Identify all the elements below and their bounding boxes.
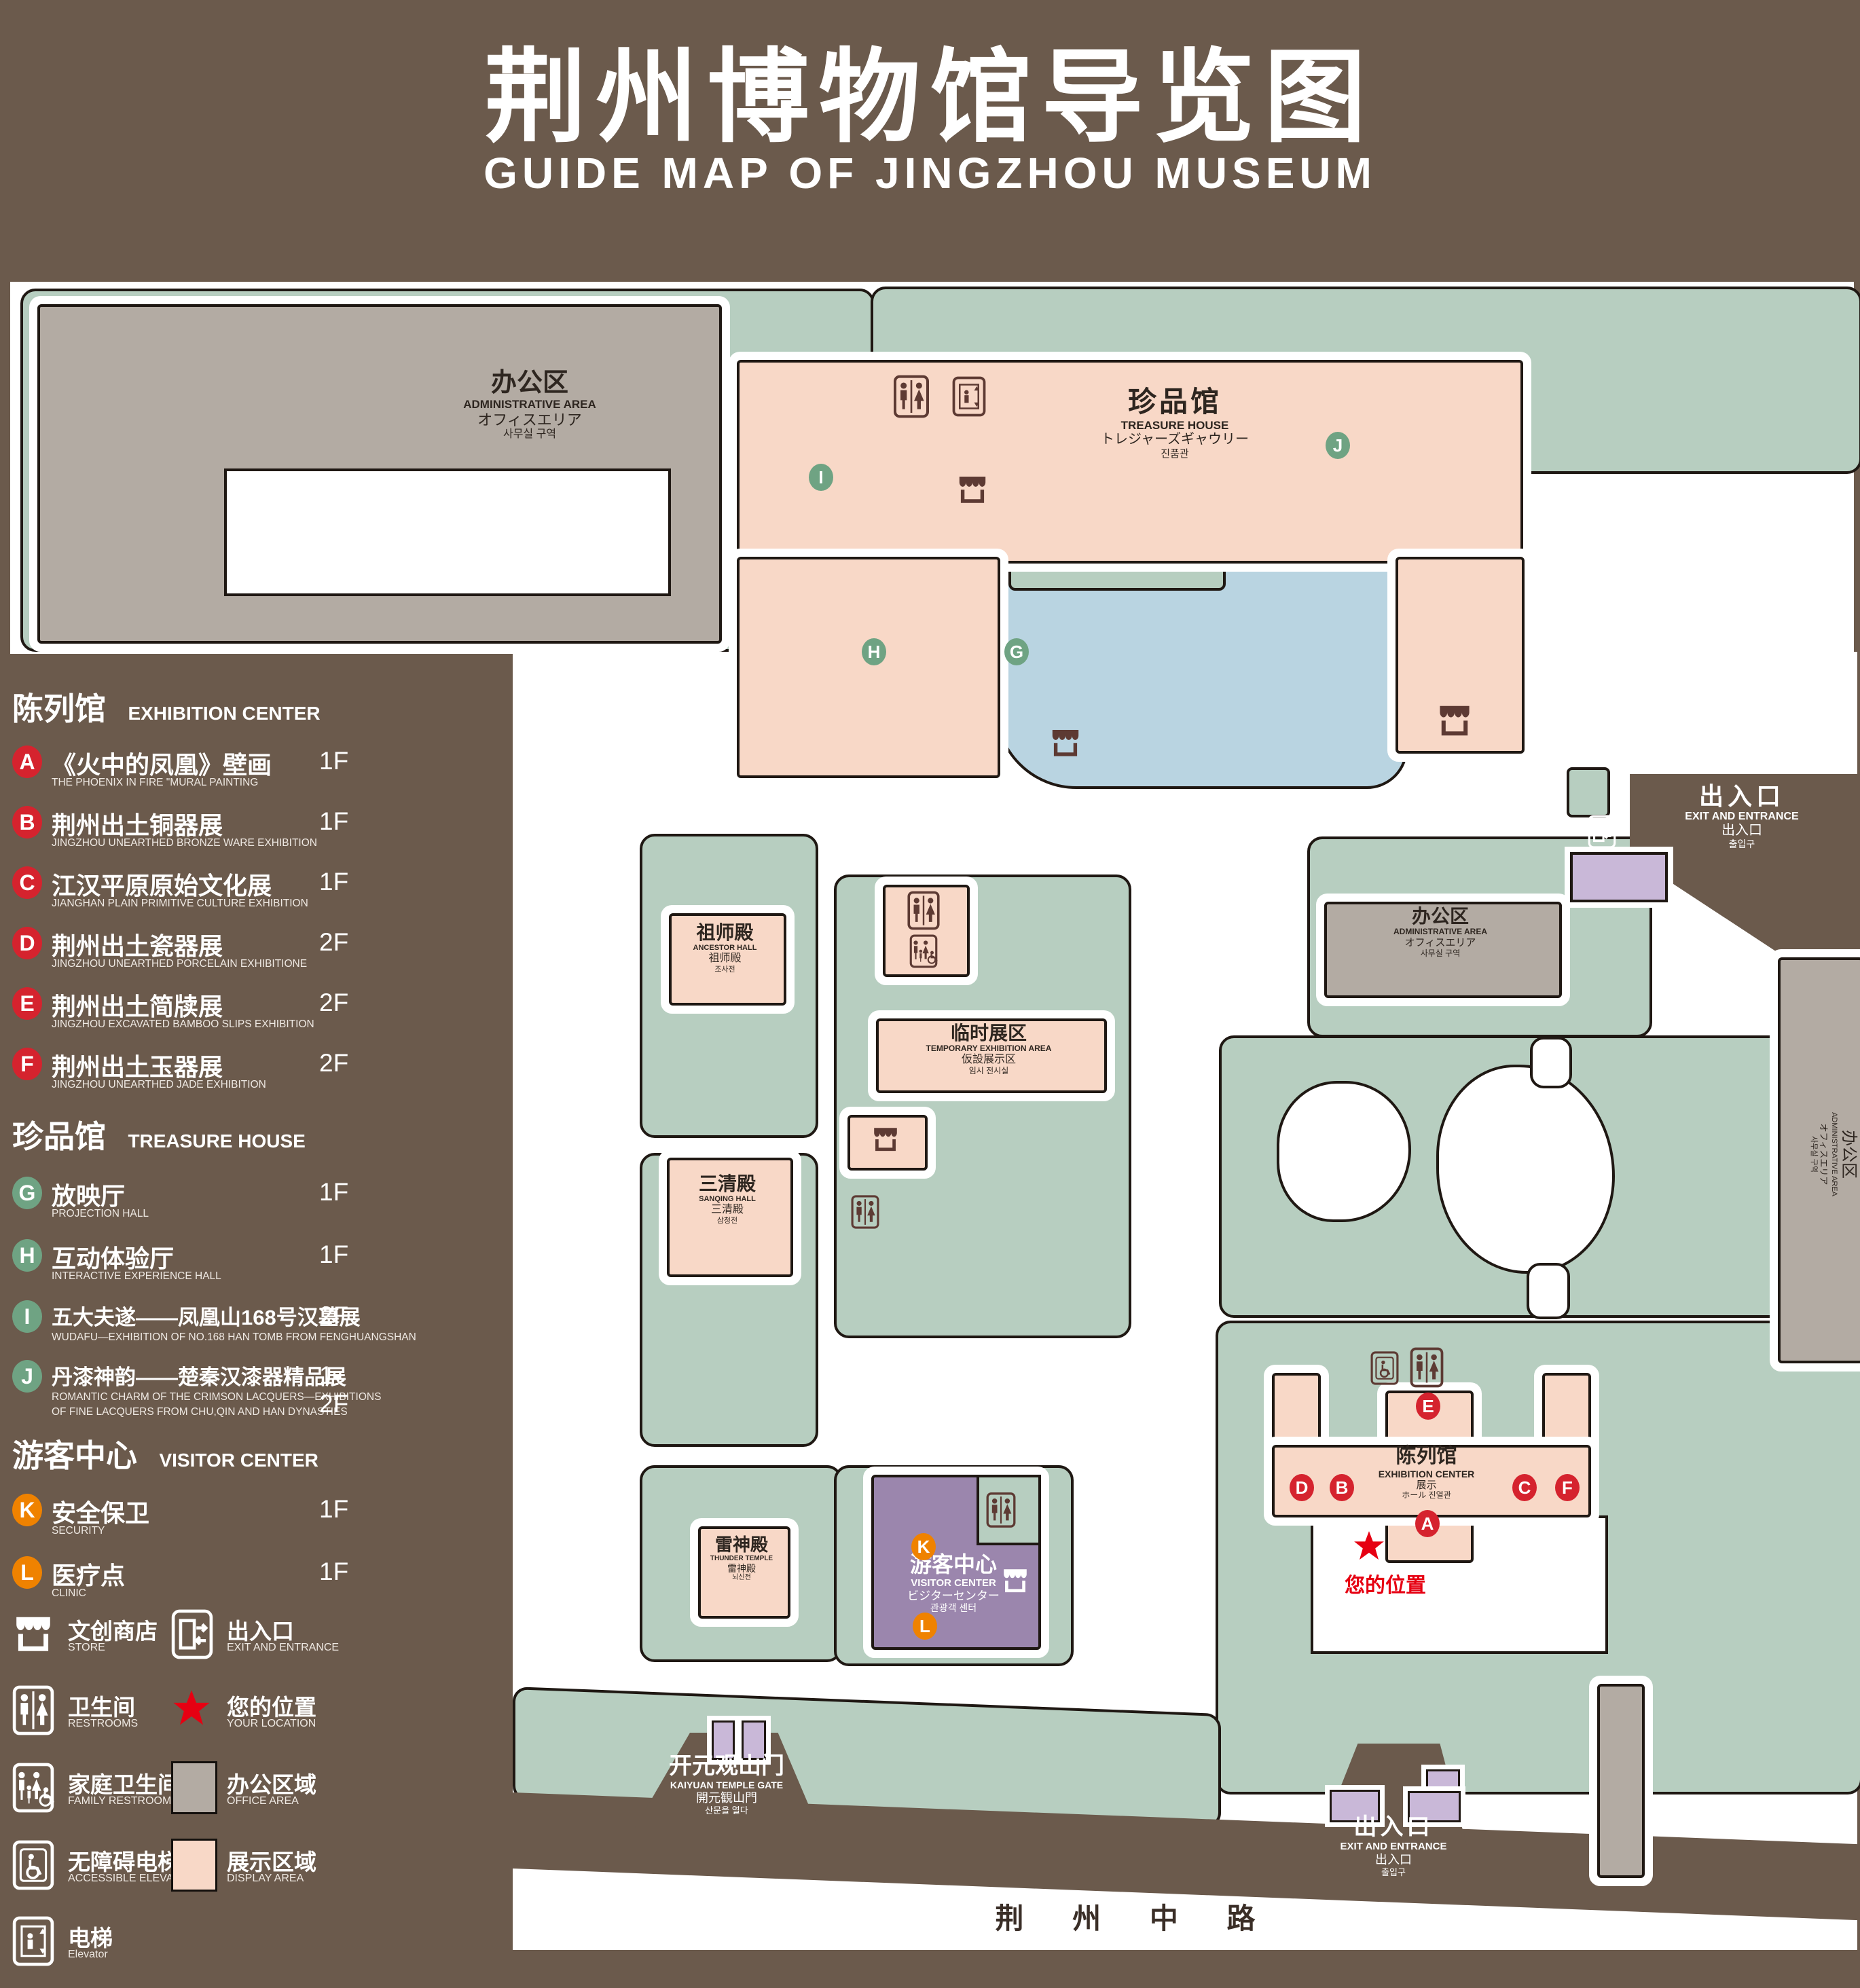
page-title: 荆州博物馆导览图 bbox=[0, 15, 1860, 162]
legend-item-title: 五大夫遂——凤凰山168号汉墓展 bbox=[52, 1300, 316, 1331]
legend-item-floor: 2F bbox=[319, 928, 348, 957]
accessible-elevator-icon bbox=[1370, 1348, 1399, 1388]
legend-item-floor: 2F bbox=[319, 1049, 348, 1078]
legend-item-floor: 1-2F bbox=[319, 1361, 362, 1418]
map-marker-J: J bbox=[1326, 432, 1350, 459]
admin-northwest-label: 办公区 ADMINISTRATIVE AREA オフィスエリア 사무실 구역 bbox=[421, 368, 638, 441]
legend-symbol-display-area: 展示区域 DISPLAY AREA bbox=[171, 1839, 348, 1907]
legend-letter-badge: D bbox=[12, 927, 42, 959]
elevator-icon bbox=[952, 375, 986, 418]
legend-item-floor: 2F bbox=[319, 1302, 348, 1330]
restrooms-icon bbox=[893, 375, 930, 418]
map-marker-G: G bbox=[1004, 638, 1029, 665]
legend-letter-badge: C bbox=[12, 866, 42, 899]
legend-item-E: E 荆州出土简牍展 JINGZHOU EXCAVATED BAMBOO SLIP… bbox=[12, 987, 362, 1050]
office-area-swatch bbox=[171, 1761, 217, 1814]
legend-symbol-title: 电梯 bbox=[68, 1920, 113, 1953]
building-treasure-house-west bbox=[737, 557, 1000, 778]
exit-icon bbox=[1584, 815, 1620, 849]
legend-letter-badge: K bbox=[12, 1494, 42, 1526]
legend-item-title: 荆州出土瓷器展 bbox=[52, 927, 316, 962]
legend-section-title-zh: 游客中心 bbox=[12, 1438, 137, 1473]
store-icon bbox=[12, 1610, 54, 1655]
legend-item-A: A 《火中的凤凰》壁画 THE PHOENIX IN FIRE "MURAL P… bbox=[12, 745, 362, 808]
legend-item-I: I 五大夫遂——凤凰山168号汉墓展 WUDAFU—EXHIBITION OF … bbox=[12, 1300, 362, 1363]
store-icon bbox=[871, 1122, 900, 1156]
legend-item-title: 荆州出土玉器展 bbox=[52, 1048, 316, 1083]
legend-letter-badge: E bbox=[12, 987, 42, 1020]
kaiyuan-gate-label: 开元观山门 KAIYUAN TEMPLE GATE 開元観山門 산문을 열다 bbox=[638, 1753, 815, 1816]
legend-item-floor: 1F bbox=[319, 747, 348, 775]
legend-symbol-your-location: 您的位置 YOUR LOCATION bbox=[171, 1684, 348, 1752]
legend-item-subtitle: JINGZHOU EXCAVATED BAMBOO SLIPS EXHIBITI… bbox=[52, 1018, 371, 1031]
accessible-elevator-icon bbox=[12, 1839, 54, 1892]
legend-item-floor: 1F bbox=[319, 1178, 348, 1207]
legend-item-subtitle: WUDAFU—EXHIBITION OF NO.168 HAN TOMB FRO… bbox=[52, 1331, 371, 1344]
legend-item-title: 安全保卫 bbox=[52, 1494, 316, 1529]
map-marker-F: F bbox=[1555, 1474, 1580, 1501]
guide-map-poster: 荆州博物馆导览图 GUIDE MAP OF JINGZHOU MUSEUM 办公… bbox=[0, 0, 1860, 1988]
garden-path-south bbox=[1527, 1263, 1570, 1319]
legend-symbol-office-area: 办公区域 OFFICE AREA bbox=[171, 1761, 348, 1829]
legend-item-subtitle: SECURITY bbox=[52, 1525, 371, 1537]
legend-item-title: 江汉平原原始文化展 bbox=[52, 866, 316, 902]
map-marker-B: B bbox=[1330, 1474, 1354, 1501]
legend-section-title-en: TREASURE HOUSE bbox=[128, 1130, 305, 1152]
admin-east-label: 办公区 ADMINISTRATIVE AREA オフィスエリア 사무실 구역 bbox=[1324, 906, 1556, 959]
legend-item-floor: 1F bbox=[319, 1240, 348, 1269]
map-marker-A: A bbox=[1415, 1510, 1440, 1537]
legend-symbol-subtitle: OFFICE AREA bbox=[227, 1795, 299, 1807]
exit-icon bbox=[171, 1608, 213, 1661]
legend-item-C: C 江汉平原原始文化展 JIANGHAN PLAIN PRIMITIVE CUL… bbox=[12, 866, 362, 929]
legend-symbol-title: 无障碍电梯 bbox=[68, 1844, 180, 1877]
display-area-swatch bbox=[171, 1839, 217, 1892]
store-icon bbox=[1436, 701, 1473, 739]
legend-item-D: D 荆州出土瓷器展 JINGZHOU UNEARTHED PORCELAIN E… bbox=[12, 927, 362, 989]
legend-item-K: K 安全保卫 SECURITY 1F bbox=[12, 1494, 362, 1556]
building-east-gate-annex bbox=[1570, 852, 1668, 902]
legend-symbol-subtitle: Elevator bbox=[68, 1949, 108, 1961]
map-marker-H: H bbox=[862, 638, 886, 665]
legend-item-F: F 荆州出土玉器展 JINGZHOU UNEARTHED JADE EXHIBI… bbox=[12, 1048, 362, 1110]
legend-letter-badge: B bbox=[12, 806, 42, 839]
legend-item-B: B 荆州出土铜器展 JINGZHOU UNEARTHED BRONZE WARE… bbox=[12, 806, 362, 868]
lawn-center bbox=[834, 875, 1131, 1338]
legend-item-floor: 2F bbox=[319, 989, 348, 1017]
legend-item-title: 放映厅 bbox=[52, 1177, 316, 1212]
legend-section-title-en: EXHIBITION CENTER bbox=[128, 703, 320, 724]
legend-symbol-title: 展示区域 bbox=[227, 1844, 316, 1877]
map-marker-I: I bbox=[809, 464, 833, 491]
restrooms-icon bbox=[907, 891, 941, 930]
legend-item-G: G 放映厅 PROJECTION HALL 1F bbox=[12, 1177, 362, 1239]
legend-section-treasure-house: 珍品馆 TREASURE HOUSE bbox=[12, 1112, 306, 1157]
legend-item-J: J 丹漆神韵——楚秦汉漆器精品展 ROMANTIC CHARM OF THE C… bbox=[12, 1360, 362, 1422]
legend-item-subtitle: JINGZHOU UNEARTHED BRONZE WARE EXHIBITIO… bbox=[52, 837, 371, 849]
legend-letter-badge: H bbox=[12, 1239, 42, 1272]
elevator-icon bbox=[12, 1915, 54, 1968]
legend-symbol-subtitle: YOUR LOCATION bbox=[227, 1718, 316, 1730]
legend-letter-badge: F bbox=[12, 1048, 42, 1080]
legend-item-title: 互动体验厅 bbox=[52, 1239, 316, 1274]
legend-symbol-elevator: 电梯 Elevator bbox=[12, 1915, 168, 1983]
your-location-star bbox=[172, 1689, 211, 1727]
building-exhibition-west-wing bbox=[1272, 1373, 1321, 1452]
store-icon bbox=[1049, 725, 1082, 759]
map-marker-L: L bbox=[913, 1613, 937, 1640]
family-restrooms-icon bbox=[12, 1761, 54, 1814]
store-icon bbox=[1001, 1564, 1029, 1596]
family-restrooms-icon bbox=[909, 934, 938, 968]
legend-symbol-title: 出入口 bbox=[227, 1613, 294, 1646]
legend-symbol-restrooms: 卫生间 RESTROOMS bbox=[12, 1684, 168, 1752]
legend-symbol-subtitle: STORE bbox=[68, 1642, 105, 1654]
legend-item-title: 医疗点 bbox=[52, 1556, 316, 1591]
road-label: 荆 州 中 路 bbox=[932, 1896, 1339, 1937]
legend-symbol-title: 卫生间 bbox=[68, 1689, 135, 1722]
legend-symbol-title: 文创商店 bbox=[68, 1613, 158, 1646]
legend-symbol-subtitle: FAMILY RESTROOMS bbox=[68, 1795, 179, 1807]
legend-item-title: 荆州出土铜器展 bbox=[52, 806, 316, 841]
restrooms-icon bbox=[851, 1194, 879, 1230]
building-exhibition-east-wing bbox=[1542, 1373, 1591, 1452]
legend-item-floor: 1F bbox=[319, 1495, 348, 1524]
map-marker-D: D bbox=[1290, 1474, 1314, 1501]
building-south-gray-block bbox=[1597, 1684, 1645, 1878]
sanqing-hall-label: 三清殿 SANQING HALL 三清殿 삼청전 bbox=[667, 1173, 788, 1226]
legend-item-subtitle: JINGZHOU UNEARTHED PORCELAIN EXHIBITIONE bbox=[52, 958, 371, 970]
legend-section-title-en: VISITOR CENTER bbox=[159, 1450, 318, 1471]
map-marker-K: K bbox=[911, 1533, 936, 1560]
your-location-star bbox=[1353, 1530, 1385, 1562]
legend-symbol-store: 文创商店 STORE bbox=[12, 1608, 168, 1676]
map-marker-E: E bbox=[1416, 1393, 1440, 1420]
legend-item-subtitle: CLINIC bbox=[52, 1587, 371, 1600]
legend-letter-badge: L bbox=[12, 1556, 42, 1589]
temporary-exhibition-label: 临时展区 TEMPORARY EXHIBITION AREA 仮設展示区 임시 … bbox=[876, 1023, 1101, 1076]
legend-section-visitor-center: 游客中心 VISITOR CENTER bbox=[12, 1431, 318, 1476]
legend-item-subtitle: JINGZHOU UNEARTHED JADE EXHIBITION bbox=[52, 1079, 371, 1091]
page-subtitle: GUIDE MAP OF JINGZHOU MUSEUM bbox=[0, 148, 1860, 198]
legend-letter-badge: G bbox=[12, 1177, 42, 1209]
legend-symbol-subtitle: RESTROOMS bbox=[68, 1718, 138, 1730]
legend-symbol-title: 您的位置 bbox=[227, 1689, 316, 1722]
legend-item-subtitle: PROJECTION HALL bbox=[52, 1208, 371, 1220]
legend-letter-badge: A bbox=[12, 745, 42, 778]
legend-letter-badge: I bbox=[12, 1300, 42, 1333]
road-south-curb bbox=[513, 1950, 1860, 1988]
legend-item-H: H 互动体验厅 INTERACTIVE EXPERIENCE HALL 1F bbox=[12, 1239, 362, 1302]
legend-section-exhibition-center: 陈列馆 EXHIBITION CENTER bbox=[12, 684, 321, 729]
map-marker-C: C bbox=[1512, 1474, 1537, 1501]
legend-section-title-zh: 陈列馆 bbox=[12, 691, 106, 726]
legend-item-floor: 1F bbox=[319, 868, 348, 896]
legend-item-title: 《火中的凤凰》壁画 bbox=[52, 745, 316, 781]
legend-symbol-title: 家庭卫生间 bbox=[68, 1767, 180, 1799]
ancestor-hall-label: 祖师殿 ANCESTOR HALL 祖师殿 조사전 bbox=[669, 922, 781, 974]
legend-symbol-subtitle: EXIT AND ENTRANCE bbox=[227, 1642, 339, 1654]
legend-symbol-title: 办公区域 bbox=[227, 1767, 316, 1799]
store-icon bbox=[956, 472, 989, 506]
restrooms-icon bbox=[1410, 1346, 1444, 1389]
legend-symbol-accessible-elevator: 无障碍电梯 ACCESSIBLE ELEVATOR bbox=[12, 1839, 168, 1907]
legend-symbol-subtitle: DISPLAY AREA bbox=[227, 1873, 304, 1885]
treasure-house-label: 珍品馆 TREASURE HOUSE トレジャーズギャウリー 진품관 bbox=[1087, 386, 1263, 460]
legend-item-subtitle: INTERACTIVE EXPERIENCE HALL bbox=[52, 1270, 371, 1283]
admin-east-strip-label: 办公区 ADMINISTRATIVE AREA オフィスエリア 사무실 구역 bbox=[1808, 917, 1859, 1392]
legend-symbol-exit: 出入口 EXIT AND ENTRANCE bbox=[171, 1608, 348, 1676]
legend-item-floor: 1F bbox=[319, 807, 348, 836]
exhibition-center-label: 陈列馆 EXHIBITION CENTER 展示 ホール 진열관 bbox=[1353, 1445, 1499, 1501]
legend-item-subtitle: JIANGHAN PLAIN PRIMITIVE CULTURE EXHIBIT… bbox=[52, 898, 371, 910]
legend-item-title: 荆州出土简牍展 bbox=[52, 987, 316, 1023]
thunder-temple-label: 雷神殿 THUNDER TEMPLE 雷神殿 뇌신전 bbox=[698, 1534, 785, 1582]
admin-northwest-courtyard bbox=[224, 468, 671, 596]
restrooms-icon bbox=[986, 1491, 1016, 1529]
legend-symbol-family-restrooms: 家庭卫生间 FAMILY RESTROOMS bbox=[12, 1761, 168, 1829]
legend-item-subtitle: THE PHOENIX IN FIRE "MURAL PAINTING bbox=[52, 777, 371, 789]
legend-section-title-zh: 珍品馆 bbox=[12, 1119, 106, 1154]
garden-path-north bbox=[1530, 1037, 1572, 1088]
restrooms-icon bbox=[12, 1684, 54, 1737]
legend-letter-badge: J bbox=[12, 1360, 42, 1393]
east-gate-label: 出入口 EXIT AND ENTRANCE 出入口 출입구 bbox=[1664, 782, 1820, 850]
south-gate-label: 出入口 EXIT AND ENTRANCE 出入口 출입구 bbox=[1319, 1814, 1468, 1877]
legend-item-floor: 1F bbox=[319, 1558, 348, 1586]
legend-item-title: 丹漆神韵——楚秦汉漆器精品展 bbox=[52, 1360, 316, 1391]
your-location-label: 您的位置 bbox=[1311, 1568, 1460, 1598]
east-gate-lawn-block bbox=[1567, 767, 1610, 817]
